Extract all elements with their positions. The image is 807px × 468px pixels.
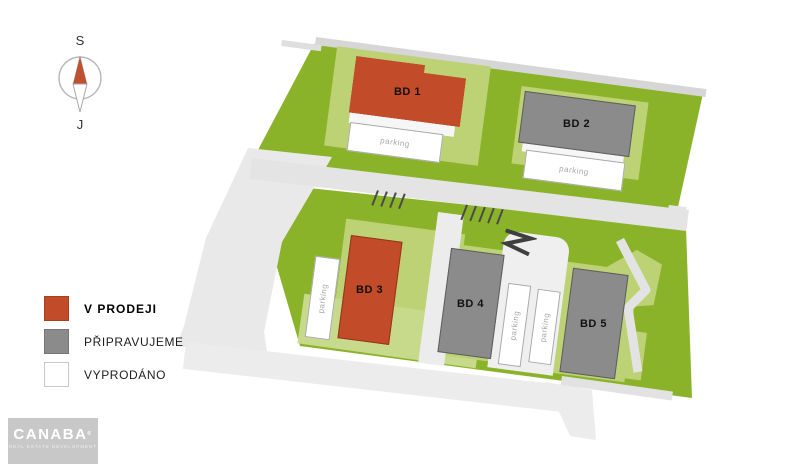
canaba-logo: CANABA® REAL ESTATE DEVELOPMENT bbox=[8, 418, 98, 464]
parking-lot-bd5-label: parking bbox=[538, 312, 551, 343]
parking-lot-bd4-label: parking bbox=[508, 310, 521, 341]
legend-label-sold-out: VYPRODÁNO bbox=[84, 368, 166, 382]
logo-tagline: REAL ESTATE DEVELOPMENT bbox=[8, 444, 98, 449]
compass-south-label: J bbox=[52, 118, 108, 132]
road-middle-end bbox=[667, 205, 686, 219]
logo-trademark: ® bbox=[87, 431, 92, 437]
legend-label-for-sale: V PRODEJI bbox=[84, 302, 157, 316]
legend-swatch-in-preparation bbox=[44, 329, 69, 354]
legend-swatch-sold-out bbox=[44, 362, 69, 387]
building-bd1-label: BD 1 bbox=[394, 86, 421, 98]
building-bd2-label: BD 2 bbox=[563, 118, 590, 130]
site-plan-page: BD 1 BD 2 BD 3 BD 4 BD 5 parking parking… bbox=[0, 0, 807, 468]
legend-label-in-preparation: PŘIPRAVUJEME bbox=[84, 335, 184, 349]
legend-item-sold-out: VYPRODÁNO bbox=[44, 362, 184, 387]
parking-lot-bd3-label: parking bbox=[316, 283, 329, 314]
building-bd5-label: BD 5 bbox=[580, 318, 607, 330]
parking-lot-bd2-label: parking bbox=[559, 164, 590, 177]
legend-item-in-preparation: PŘIPRAVUJEME bbox=[44, 329, 184, 354]
compass-needle-icon bbox=[52, 50, 108, 118]
building-bd3-label: BD 3 bbox=[356, 284, 383, 296]
building-bd4-label: BD 4 bbox=[457, 298, 484, 310]
legend-item-for-sale: V PRODEJI bbox=[44, 296, 184, 321]
logo-name: CANABA bbox=[13, 426, 87, 443]
legend: V PRODEJI PŘIPRAVUJEME VYPRODÁNO bbox=[44, 296, 184, 395]
legend-swatch-for-sale bbox=[44, 296, 69, 321]
compass: S J bbox=[52, 34, 108, 132]
parking-lot-bd1-label: parking bbox=[380, 136, 411, 149]
compass-north-label: S bbox=[52, 34, 108, 48]
